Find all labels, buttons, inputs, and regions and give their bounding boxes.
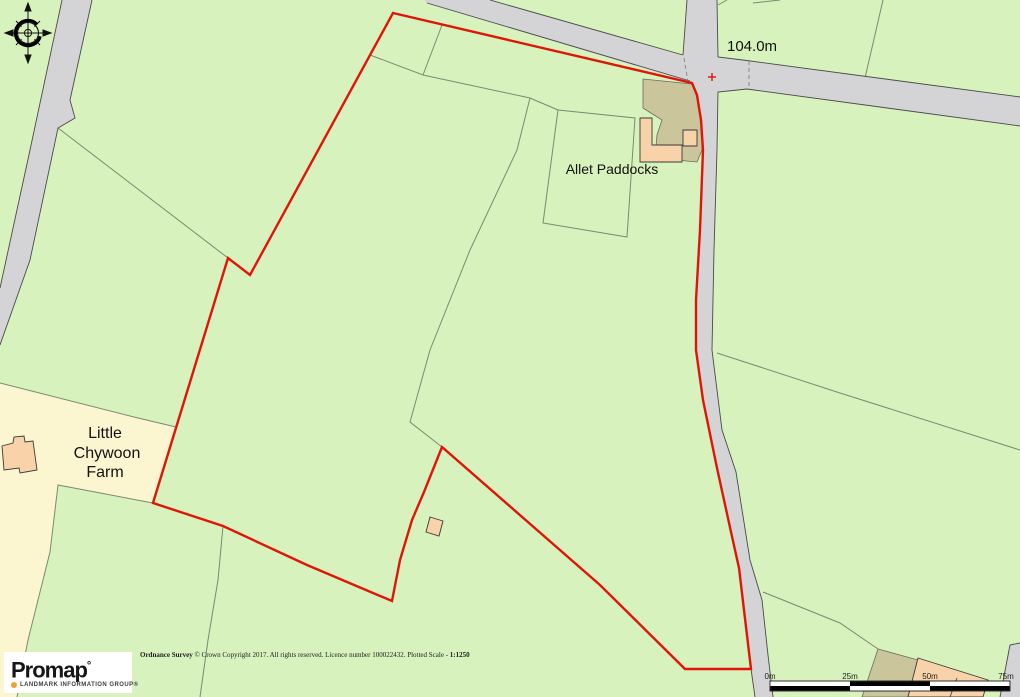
allet-paddocks-buildings [640, 79, 702, 162]
scale-label-75: 75m [998, 672, 1014, 681]
farm-label-line-1: Little [88, 425, 122, 442]
promap-trademark-dot: ° [87, 660, 91, 672]
promap-logo: Promap° LANDMARK INFORMATION GROUP® [4, 652, 132, 693]
farm-label-line-2: Chywoon [74, 445, 141, 462]
allet-paddocks-label: Allet Paddocks [566, 161, 659, 177]
promap-wordmark: Promap° [11, 654, 132, 682]
scale-label-25: 25m [842, 672, 858, 681]
building [683, 130, 697, 146]
scale-label-0: 0m [764, 672, 775, 681]
promap-brand-text: Promap [11, 657, 87, 682]
attribution-source: Ordnance Survey [140, 651, 193, 659]
landmark-bullet-icon [11, 682, 17, 688]
spot-height-label: 104.0m [727, 38, 777, 55]
attribution-text: Ordnance Survey © Crown Copyright 2017. … [140, 651, 560, 659]
attribution-body: © Crown Copyright 2017. All rights reser… [193, 651, 450, 659]
attribution-scale: 1:1250 [450, 651, 470, 659]
map-canvas: 104.0m Allet Paddocks Little Chywoon Far… [0, 0, 1020, 697]
scale-label-50: 50m [922, 672, 938, 681]
farm-label-line-3: Farm [86, 464, 123, 481]
map-drawing: 104.0m Allet Paddocks Little Chywoon Far… [0, 0, 1020, 697]
landmark-tagline: LANDMARK INFORMATION GROUP® [20, 682, 138, 688]
